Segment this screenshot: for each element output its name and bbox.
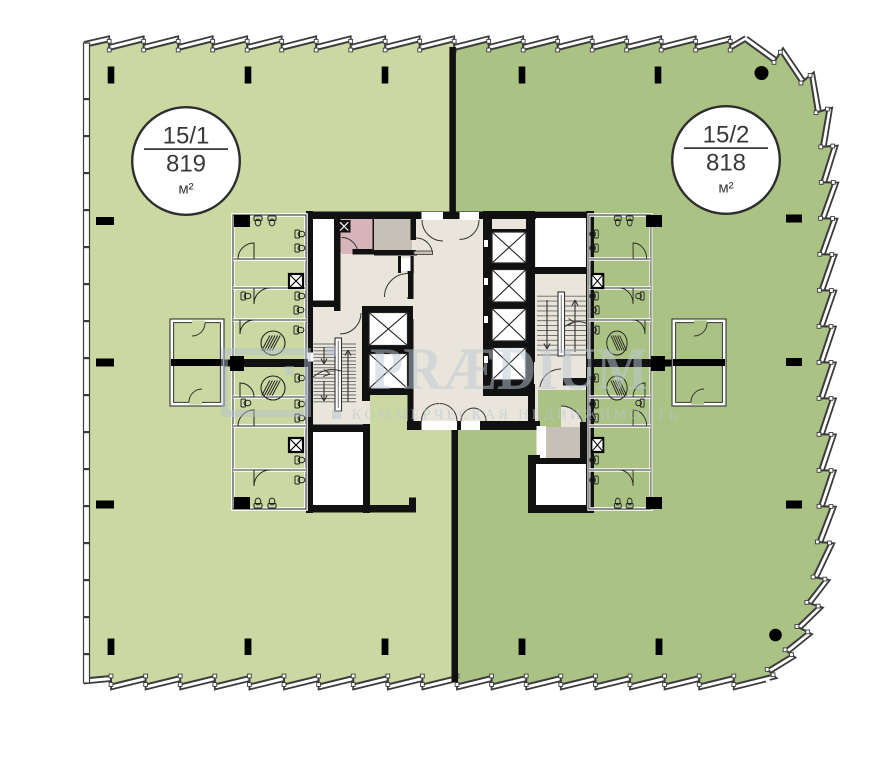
svg-text:818: 818	[706, 149, 746, 176]
svg-text:15/1: 15/1	[163, 123, 210, 150]
svg-text:15/2: 15/2	[703, 122, 750, 149]
svg-text:819: 819	[166, 150, 206, 177]
svg-text:PRÆDIUM: PRÆDIUM	[370, 336, 648, 402]
svg-text:м²: м²	[178, 181, 193, 198]
svg-text:м²: м²	[718, 180, 733, 197]
